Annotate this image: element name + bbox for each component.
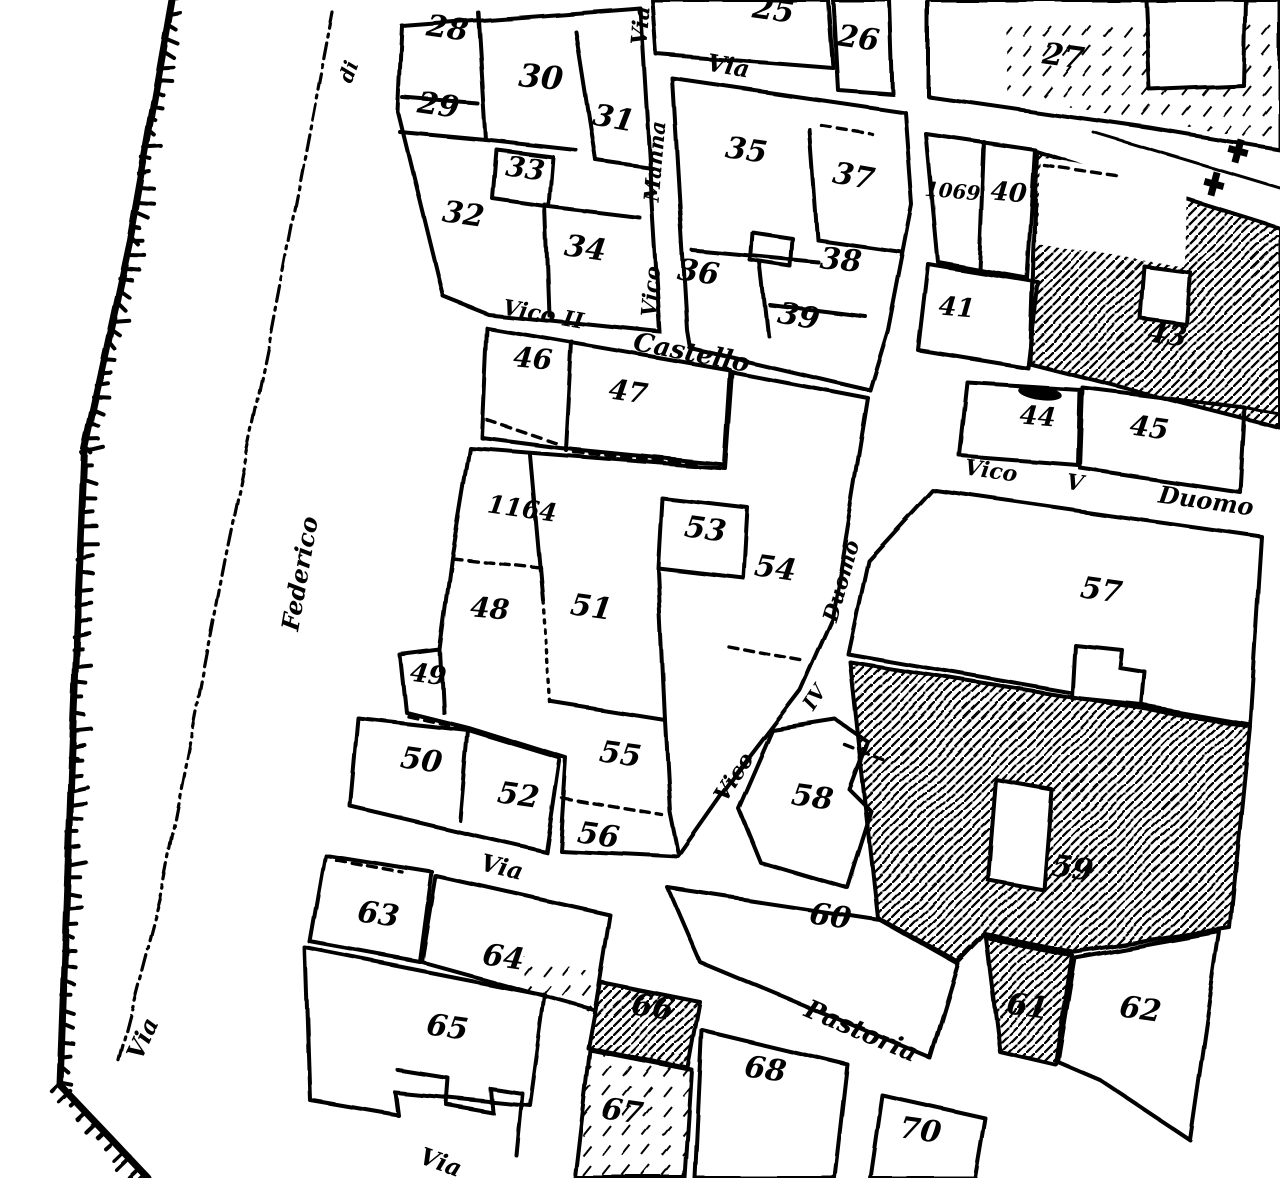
street-label: di	[333, 57, 363, 85]
parcel-label: 31	[590, 98, 637, 140]
parcel-label: 47	[607, 373, 651, 411]
parcel-label: 44	[1018, 401, 1057, 434]
street-label: Via	[478, 847, 527, 886]
parcel-boundary	[478, 12, 486, 140]
parcel-boundary	[576, 32, 596, 160]
parcel-label: 28	[423, 8, 470, 49]
parcel-label: 58	[789, 777, 835, 817]
parcel-label: 57	[1078, 570, 1124, 610]
parcel-boundary	[566, 342, 572, 450]
parcel-label: 68	[742, 1049, 788, 1089]
parcel-label: 53	[682, 509, 728, 549]
street-label: Manna	[638, 120, 670, 204]
block-outline	[918, 264, 1038, 368]
parcel-label: 37	[830, 156, 877, 198]
street-label: II	[560, 305, 586, 334]
parcel-label: 34	[562, 228, 608, 268]
parcel-boundary	[760, 262, 768, 335]
parcel-label: 33	[504, 150, 547, 188]
parcel-label: 55	[597, 734, 643, 774]
parcel-label: 32	[440, 194, 486, 234]
parcel-label: 50	[398, 740, 444, 780]
parcel-label: 27	[1039, 36, 1086, 77]
parcel-boundary	[810, 130, 818, 240]
building-notch	[988, 780, 1052, 890]
parcel-label: 41	[937, 292, 976, 325]
building-footprint	[1072, 645, 1145, 705]
parcel-label: 35	[723, 130, 769, 170]
building-footprint	[1146, 0, 1246, 90]
parcel-label: 51	[568, 587, 614, 627]
parcel-label: 48	[469, 590, 511, 626]
parcel-label: 65	[424, 1007, 470, 1047]
parcel-boundary	[665, 720, 678, 852]
street-label: Via	[120, 1013, 164, 1064]
city-wall-hatching	[52, 0, 181, 1178]
street-label: Castello	[631, 327, 752, 379]
parcel-boundary	[979, 142, 984, 270]
parcel-label: 39	[775, 296, 822, 338]
parcel-label: 29	[414, 85, 461, 126]
parcel-label: 64	[480, 937, 526, 977]
parcel-label: 46	[512, 340, 554, 376]
parcel-label: 49	[408, 658, 448, 693]
parcel-label: 56	[575, 815, 621, 855]
church-cross-marker	[1201, 170, 1227, 198]
parcel-label: 26	[834, 18, 881, 59]
street-label: Vico	[636, 265, 665, 318]
parcel-boundary-dashed	[562, 798, 662, 815]
parcel-label: 52	[495, 775, 541, 815]
parcel-label: 40	[989, 177, 1028, 210]
parcel-boundary-dotted	[543, 600, 550, 702]
parcel-boundary	[549, 207, 640, 218]
parcel-label: 45	[1128, 409, 1171, 447]
parcel-boundary-dashed	[452, 558, 545, 568]
parcel-label: 1164	[486, 489, 559, 527]
parcel-boundary	[400, 132, 486, 140]
street-label: Federico	[275, 514, 324, 634]
parcel-label: 70	[897, 1110, 943, 1150]
parcel-label: 38	[819, 241, 864, 280]
parcel-boundary-dashed	[822, 126, 872, 134]
street-label: Via	[705, 48, 752, 84]
cadastral-map: 2829303132333425262735363738391069404143…	[0, 0, 1280, 1178]
parcel-label: 36	[675, 252, 721, 292]
parcel-boundary	[552, 702, 665, 720]
parcel-boundary	[398, 1070, 522, 1155]
parcel-label: 66	[629, 987, 675, 1027]
parcel-boundary	[530, 455, 543, 600]
parcel-boundary	[545, 205, 549, 315]
block-outline	[1058, 932, 1220, 1140]
parcel-label: 1069	[924, 177, 982, 206]
parcel-label: 61	[1004, 986, 1050, 1026]
street-label: V	[1065, 469, 1087, 497]
parcel-label: 60	[807, 896, 853, 936]
parcel-label: 30	[517, 56, 565, 98]
parcel-label: 54	[752, 548, 798, 588]
hatch-area	[520, 955, 600, 1012]
parcel-label: 43	[1146, 316, 1189, 354]
street-label: Via	[416, 1141, 466, 1178]
parcel-label: 59	[1049, 848, 1095, 888]
parcel-label: 63	[355, 894, 401, 934]
building-footprint	[1140, 266, 1190, 324]
cadastral-map-svg: 2829303132333425262735363738391069404143…	[0, 0, 1280, 1178]
parcel-boundary	[658, 570, 665, 720]
street-label: Via	[626, 5, 655, 46]
parcel-label: 67	[599, 1091, 645, 1131]
parcel-boundary-dashed	[728, 646, 802, 660]
parcel-label: 62	[1117, 989, 1163, 1029]
parcel-label: 25	[749, 0, 796, 31]
parcel-boundary	[460, 730, 468, 820]
